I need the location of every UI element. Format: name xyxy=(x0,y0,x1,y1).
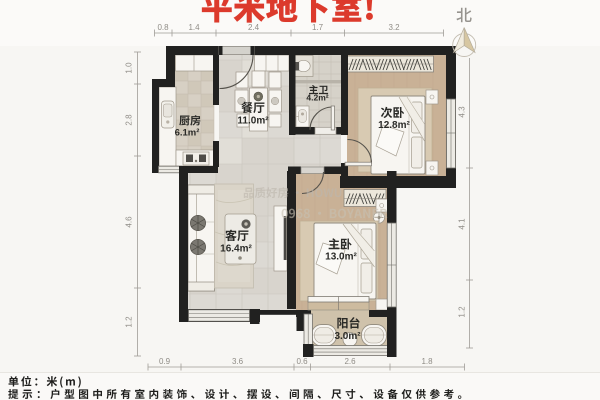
svg-text:0.9: 0.9 xyxy=(159,357,171,366)
svg-text:6.1m²: 6.1m² xyxy=(175,128,200,139)
svg-text:0.6: 0.6 xyxy=(296,357,308,366)
svg-text:1.8: 1.8 xyxy=(421,357,433,366)
svg-text:1.4: 1.4 xyxy=(188,23,200,32)
svg-text:1.2: 1.2 xyxy=(458,306,467,318)
svg-text:1.2: 1.2 xyxy=(125,316,134,328)
svg-text:12.8m²: 12.8m² xyxy=(378,120,410,131)
svg-text:3.2: 3.2 xyxy=(388,23,400,32)
svg-text:4.2m²: 4.2m² xyxy=(306,93,328,103)
svg-text:13.0m²: 13.0m² xyxy=(325,252,357,263)
svg-text:16.4m²: 16.4m² xyxy=(220,244,252,255)
svg-text:4.3: 4.3 xyxy=(458,106,467,118)
svg-text:3.6: 3.6 xyxy=(232,357,244,366)
svg-text:11.0m²: 11.0m² xyxy=(237,116,269,127)
svg-text:1.7: 1.7 xyxy=(312,23,324,32)
svg-text:2.4: 2.4 xyxy=(248,23,260,32)
svg-text:3.0m²: 3.0m² xyxy=(334,331,361,342)
svg-text:4.6: 4.6 xyxy=(125,216,134,228)
svg-text:2.6: 2.6 xyxy=(344,357,356,366)
svg-text:4.1: 4.1 xyxy=(458,218,467,230)
svg-text:0.8: 0.8 xyxy=(157,23,169,32)
svg-text:1.0: 1.0 xyxy=(125,62,134,74)
svg-text:2.8: 2.8 xyxy=(125,114,134,126)
